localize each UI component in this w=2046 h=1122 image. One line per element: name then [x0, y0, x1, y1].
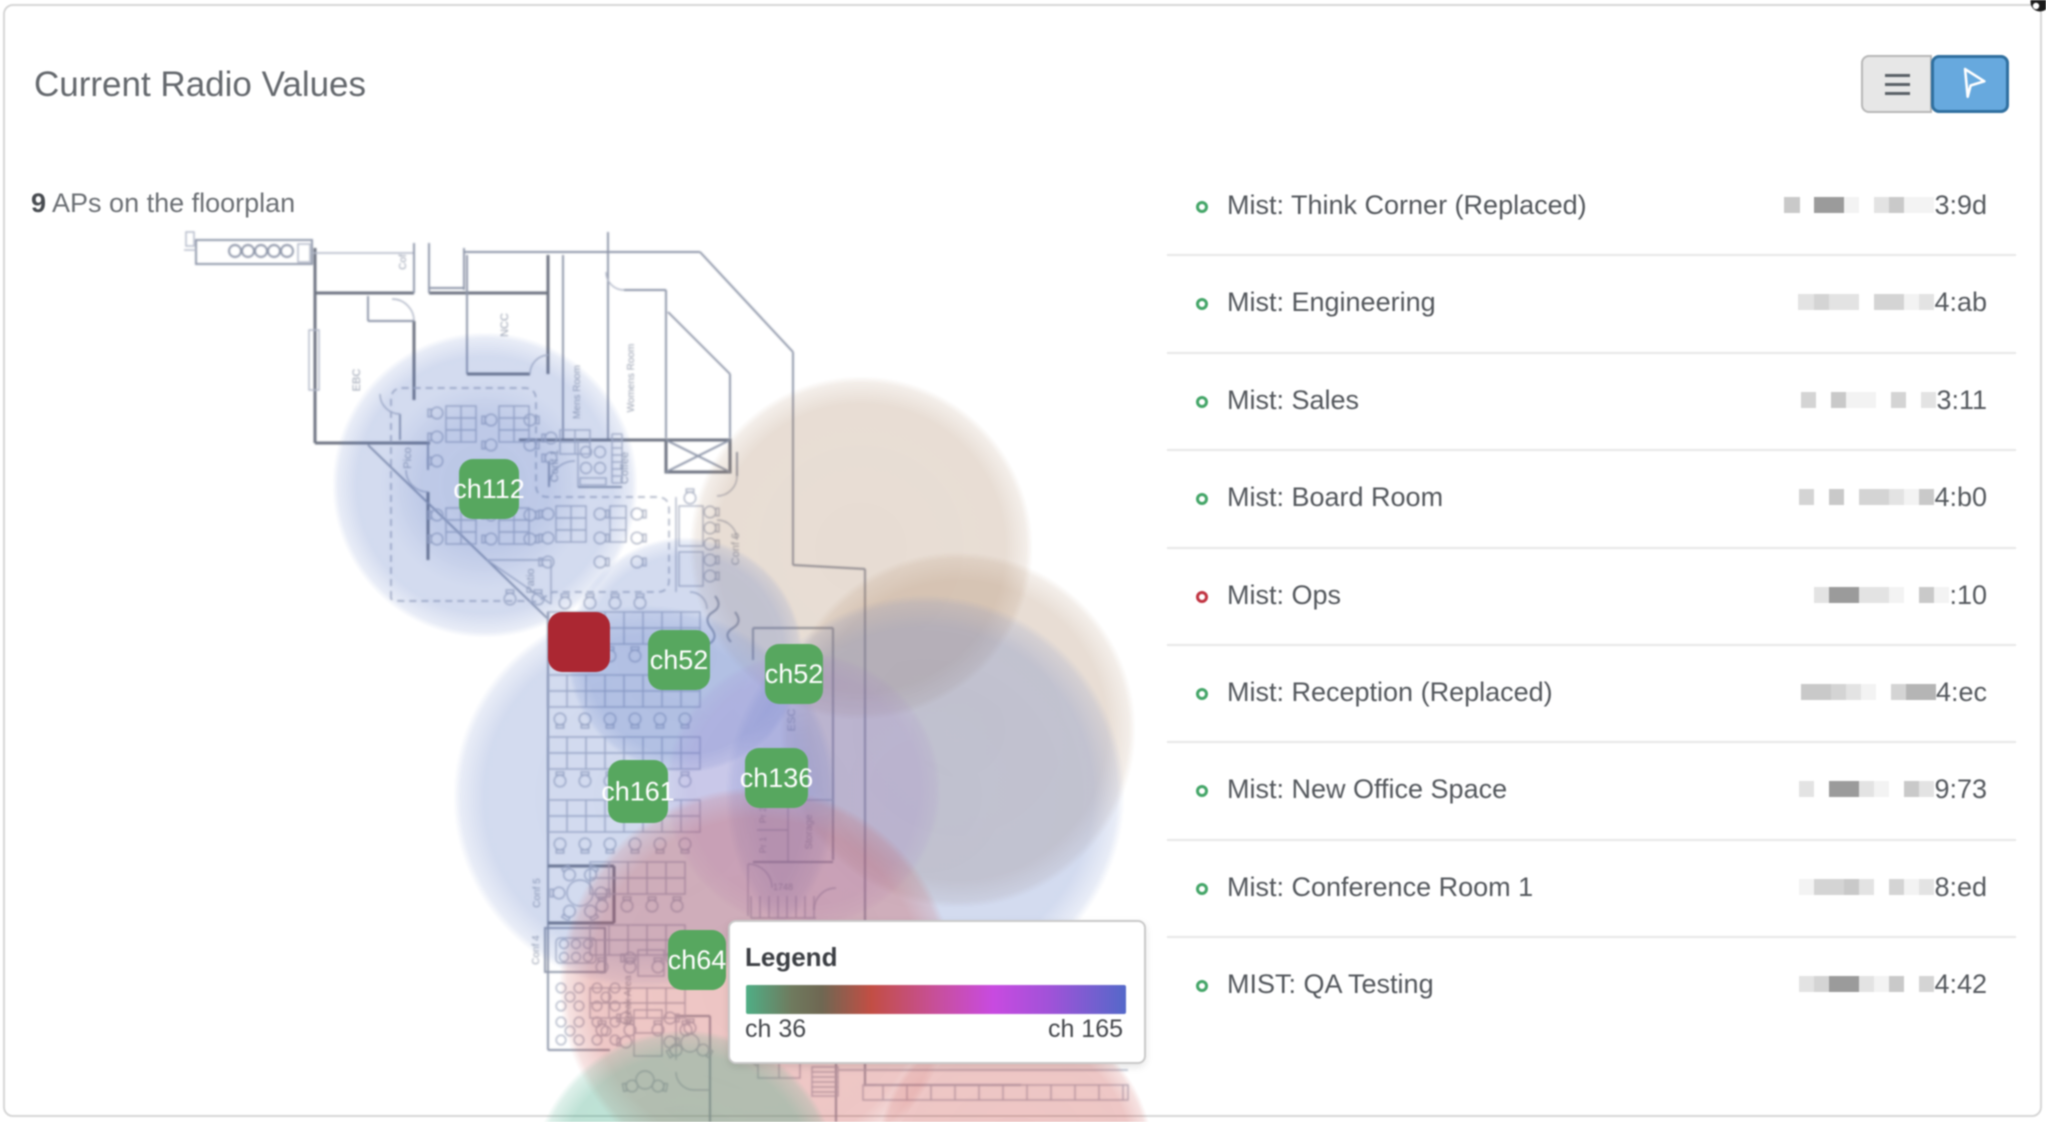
- svg-text:ch52: ch52: [765, 659, 824, 689]
- svg-text:ch52: ch52: [650, 645, 709, 675]
- svg-text:ch64: ch64: [668, 945, 727, 975]
- svg-text:Cof: Cof: [398, 254, 409, 270]
- svg-text:ch136: ch136: [740, 763, 814, 793]
- svg-text:ch161: ch161: [601, 777, 675, 807]
- svg-text:EBC: EBC: [351, 369, 363, 392]
- svg-text:Womens Room: Womens Room: [626, 344, 637, 413]
- svg-text:ch112: ch112: [453, 474, 525, 504]
